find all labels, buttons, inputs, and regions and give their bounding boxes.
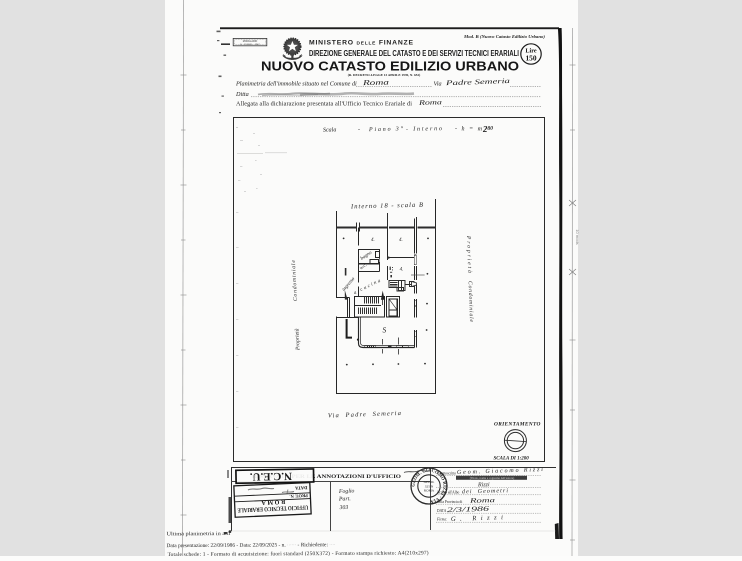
svg-text:Ultima planimetria in atti: Ultima planimetria in atti (166, 531, 231, 537)
svg-text:DATA: DATA (294, 485, 307, 491)
svg-text:Part.: Part. (338, 496, 351, 502)
svg-text:N.C.E.U.: N.C.E.U. (249, 470, 292, 483)
svg-text:MODULARIO: MODULARIO (243, 40, 258, 43)
svg-text:150: 150 (525, 53, 536, 62)
svg-text:ROMA: ROMA (260, 498, 286, 505)
svg-text:-: - (358, 127, 360, 133)
svg-text:Roma: Roma (361, 78, 389, 88)
svg-text:SCALA DI 1:200: SCALA DI 1:200 (494, 456, 530, 461)
svg-text:Roma: Roma (417, 98, 442, 107)
svg-text:ROMA: ROMA (424, 488, 435, 492)
svg-text:DIREZIONE GENERALE DEL CATASTO: DIREZIONE GENERALE DEL CATASTO E DEI SER… (309, 49, 519, 58)
svg-text:NUOVO CATASTO EDILIZIO URBANO: NUOVO CATASTO EDILIZIO URBANO (261, 59, 519, 74)
svg-text:della Provincia di: della Provincia di (437, 500, 462, 504)
svg-text:Via: Via (434, 80, 442, 87)
svg-text:303: 303 (338, 505, 348, 511)
svg-text:(R. DECRETO-LEGGE 13 APRILE 19: (R. DECRETO-LEGGE 13 APRILE 1939, N. 652… (348, 73, 421, 77)
svg-text:- h = m: - h = m (455, 127, 483, 133)
svg-text:Il sottoscritto: Il sottoscritto (437, 471, 456, 475)
svg-text:4.: 4. (371, 238, 375, 243)
svg-text:MINISTERO DELLE FINANZE: MINISTERO DELLE FINANZE (309, 40, 413, 47)
svg-text:Firma:: Firma: (436, 518, 447, 522)
svg-text:iscritto all'Albo: iscritto all'Albo (437, 491, 460, 495)
svg-text:2/3/1986: 2/3/1986 (447, 505, 490, 514)
svg-text:GEOM.: GEOM. (424, 480, 435, 484)
svg-text:Allegata alla dichiarazione pr: Allegata alla dichiarazione presentata a… (236, 100, 412, 107)
svg-text:4.: 4. (399, 238, 403, 243)
svg-text:Ditta: Ditta (235, 91, 249, 98)
svg-text:Data presentazione: 22/09/1986: Data presentazione: 22/09/1986 - Data: 2… (166, 542, 335, 549)
svg-text:Foglio: Foglio (338, 488, 355, 495)
svg-text:Scala: Scala (323, 127, 336, 133)
svg-text:10 mods: 10 mods (575, 229, 580, 244)
svg-text:F. - 19 MOD. - 1947: F. - 19 MOD. - 1947 (240, 44, 260, 46)
svg-text:Mod. B (Nuovo Catasto Edilizio: Mod. B (Nuovo Catasto Edilizio Urbano) (463, 35, 546, 39)
svg-text:ORIENTAMENTO: ORIENTAMENTO (494, 422, 541, 428)
svg-text:Roma: Roma (468, 497, 496, 505)
svg-text:DATA: DATA (437, 509, 447, 513)
svg-text:4.: 4. (400, 268, 404, 273)
svg-text:Planimetria dell'immobile situ: Planimetria dell'immobile situato nel Co… (235, 80, 357, 87)
svg-text:Proprietà: Proprietà (294, 328, 301, 351)
